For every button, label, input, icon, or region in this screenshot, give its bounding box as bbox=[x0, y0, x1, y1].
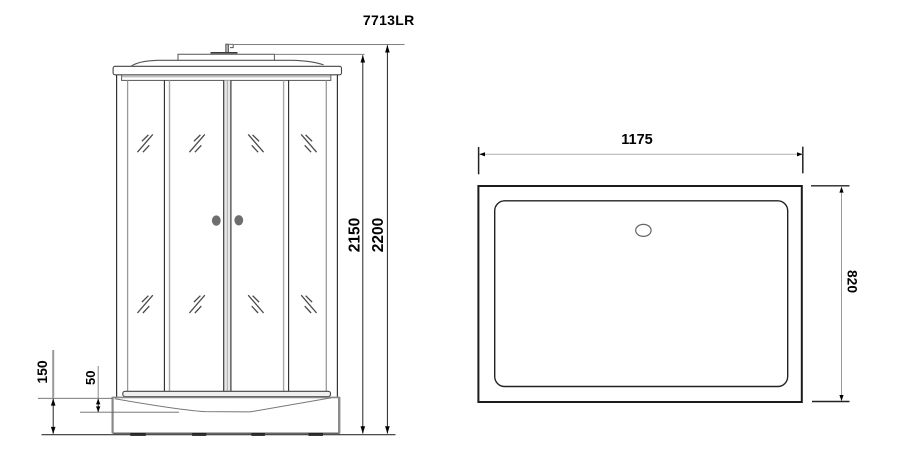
svg-text:150: 150 bbox=[34, 360, 50, 384]
svg-text:2200: 2200 bbox=[370, 218, 387, 252]
svg-text:2150: 2150 bbox=[347, 218, 364, 252]
svg-text:1175: 1175 bbox=[621, 132, 652, 148]
svg-text:50: 50 bbox=[83, 371, 98, 385]
svg-text:820: 820 bbox=[845, 270, 860, 293]
svg-text:7713LR: 7713LR bbox=[363, 12, 415, 28]
